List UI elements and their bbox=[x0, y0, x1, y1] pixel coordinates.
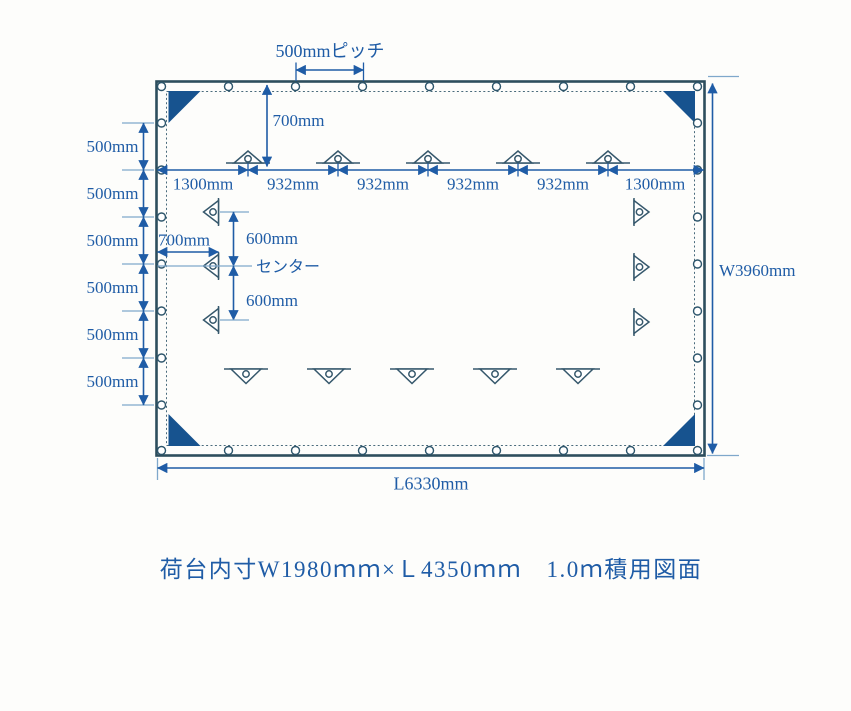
grommet bbox=[560, 83, 568, 91]
grommet bbox=[225, 447, 233, 455]
drawing-page: 500mmピッチ 700mm 1300mm 932mm 932mm 932mm … bbox=[0, 0, 851, 711]
center-detail-dimensions: 700mm 600mm センター 600mm bbox=[158, 212, 321, 320]
grommet bbox=[627, 447, 635, 455]
dim-label: 500mm bbox=[87, 184, 139, 203]
grommet bbox=[225, 83, 233, 91]
dim-label: 500mm bbox=[87, 137, 139, 156]
top-offset-label: 700mm bbox=[273, 111, 325, 130]
dim-label: 500mm bbox=[87, 231, 139, 250]
grommet bbox=[426, 83, 434, 91]
grommet bbox=[694, 307, 702, 315]
top-offset-dimension: 700mm bbox=[267, 85, 324, 167]
grommet bbox=[694, 260, 702, 268]
grommet bbox=[158, 83, 166, 91]
hook-markers-bottom-row bbox=[224, 369, 600, 384]
dim-label: 500mm bbox=[87, 372, 139, 391]
dim-label: 600mm bbox=[246, 229, 298, 248]
grommet bbox=[158, 119, 166, 127]
grommet bbox=[694, 447, 702, 455]
hook-marker-icon bbox=[224, 369, 268, 384]
left-offset-label: 700mm bbox=[158, 231, 210, 250]
left-dimension-stack: 500mm 500mm 500mm 500mm 500mm 500mm bbox=[87, 123, 154, 405]
grommet bbox=[158, 260, 166, 268]
grommet bbox=[292, 83, 300, 91]
grommet bbox=[694, 119, 702, 127]
grommet bbox=[694, 354, 702, 362]
grommet bbox=[493, 83, 501, 91]
grommet bbox=[426, 447, 434, 455]
grommet bbox=[560, 447, 568, 455]
tarp-outline bbox=[157, 82, 705, 456]
grommet bbox=[158, 213, 166, 221]
hook-marker-icon bbox=[390, 369, 434, 384]
pitch-dimension: 500mmピッチ bbox=[275, 41, 384, 81]
top-dimension-chain: 1300mm 932mm 932mm 932mm 932mm 1300mm bbox=[158, 164, 704, 194]
center-line-label: センター bbox=[256, 258, 320, 276]
corner-reinforcement-bottom-left bbox=[169, 414, 201, 446]
grommets-left-edge bbox=[158, 119, 166, 409]
grommet bbox=[158, 447, 166, 455]
hook-markers-top-row bbox=[226, 151, 630, 163]
grommet bbox=[694, 213, 702, 221]
grommet bbox=[158, 354, 166, 362]
grommets-bottom-edge bbox=[158, 447, 702, 455]
hook-marker-icon bbox=[556, 369, 600, 384]
hook-marker-icon bbox=[226, 151, 270, 163]
dim-label: 932mm bbox=[447, 175, 499, 194]
hook-marker-icon bbox=[586, 151, 630, 163]
corner-reinforcement-top-left bbox=[169, 91, 201, 123]
grommet bbox=[359, 447, 367, 455]
tarp-dimension-diagram: 500mmピッチ 700mm 1300mm 932mm 932mm 932mm … bbox=[0, 0, 851, 711]
dim-label: 500mm bbox=[87, 325, 139, 344]
hook-marker-icon bbox=[316, 151, 360, 163]
hook-markers-right-column bbox=[634, 198, 649, 336]
grommet bbox=[292, 447, 300, 455]
grommet bbox=[158, 307, 166, 315]
grommets-top-edge bbox=[158, 83, 702, 91]
corner-reinforcement-bottom-right bbox=[663, 414, 695, 446]
hook-marker-icon bbox=[307, 369, 351, 384]
width-dimension: W3960mm bbox=[707, 77, 796, 456]
hook-marker-icon bbox=[204, 306, 219, 334]
tarp-seam-dotted-line bbox=[167, 92, 695, 446]
dim-label: 932mm bbox=[267, 175, 319, 194]
drawing-caption: 荷台内寸W1980ｍｍ×Ｌ4350ｍｍ 1.0ｍ積用図面 bbox=[160, 557, 702, 582]
width-dimension-label: W3960mm bbox=[719, 261, 796, 280]
dim-label: 1300mm bbox=[625, 175, 685, 194]
grommet bbox=[694, 83, 702, 91]
grommet bbox=[359, 83, 367, 91]
hook-marker-icon bbox=[634, 253, 649, 281]
grommet bbox=[694, 401, 702, 409]
grommet bbox=[158, 401, 166, 409]
grommet bbox=[627, 83, 635, 91]
dim-label: 932mm bbox=[357, 175, 409, 194]
hook-marker-icon bbox=[204, 198, 219, 226]
length-dimension: L6330mm bbox=[158, 458, 705, 494]
hook-marker-icon bbox=[496, 151, 540, 163]
dim-label: 1300mm bbox=[173, 175, 233, 194]
dim-label: 600mm bbox=[246, 291, 298, 310]
hook-marker-icon bbox=[406, 151, 450, 163]
dim-label: 500mm bbox=[87, 278, 139, 297]
hook-marker-icon bbox=[473, 369, 517, 384]
hook-marker-icon bbox=[634, 308, 649, 336]
dim-label: 932mm bbox=[537, 175, 589, 194]
pitch-dimension-label: 500mmピッチ bbox=[275, 41, 384, 61]
grommet bbox=[493, 447, 501, 455]
corner-reinforcement-top-right bbox=[663, 91, 695, 123]
length-dimension-label: L6330mm bbox=[394, 474, 469, 494]
hook-marker-icon bbox=[634, 198, 649, 226]
